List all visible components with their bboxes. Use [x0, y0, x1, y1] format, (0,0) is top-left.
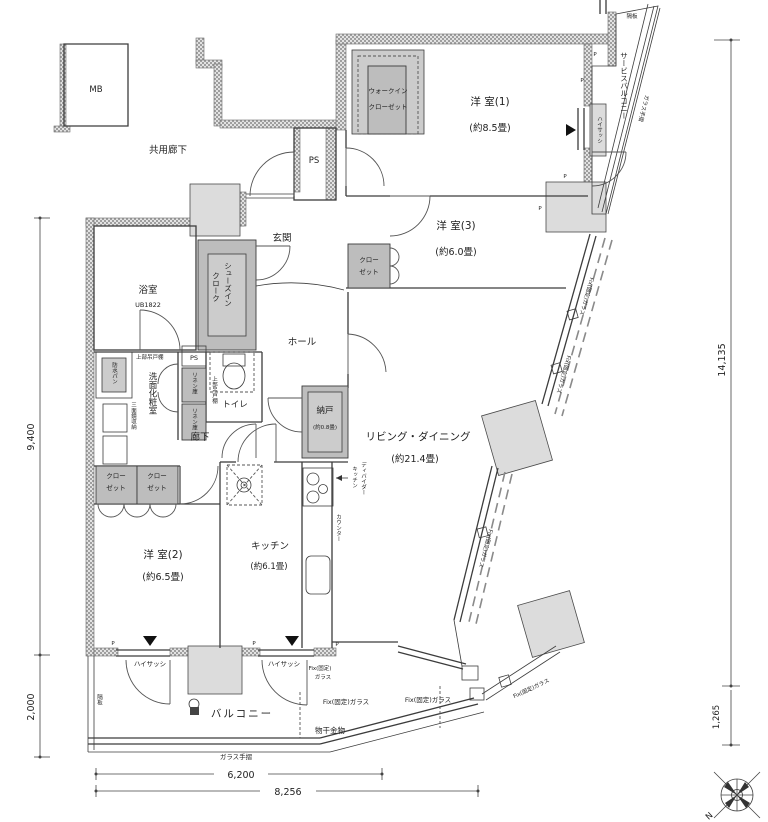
- window-room1-east: [566, 108, 584, 150]
- mirror-cabinet-label: 三面鏡収納: [130, 402, 137, 431]
- entrance-label: 玄関: [272, 232, 291, 244]
- compass-north-label: N: [704, 811, 715, 822]
- room3-size-label: (約6.0畳): [435, 246, 477, 258]
- service-balcony-label: サービスバルコニー: [619, 52, 628, 120]
- window-marker-room2: [143, 636, 157, 646]
- balcony-structure: [88, 656, 484, 752]
- room3-label: 洋 室(3): [436, 219, 475, 232]
- common-corridor-label: 共用廊下: [149, 144, 187, 156]
- toilet-label: トイレ: [222, 400, 248, 410]
- counter-label: カウンター: [335, 514, 342, 542]
- partition-left-label: 隔板: [96, 693, 103, 707]
- meter-box-label: MB: [89, 85, 102, 95]
- wic-label-1: ウォークイン: [369, 87, 408, 95]
- upper-cabinet-label-2: 上部吊戸棚: [211, 375, 218, 405]
- fix-glass-label-3a: Fix(固定): [309, 664, 332, 672]
- storage-room-label: 納戸: [316, 405, 333, 416]
- high-sash-label-room1: ハイサッシ: [596, 116, 603, 144]
- bathroom-model-label: UB1822: [135, 301, 161, 309]
- living-label: リビング・ダイニング: [366, 430, 471, 443]
- compass-icon: [714, 772, 760, 818]
- balcony-slab: [188, 646, 242, 694]
- closet-b-label-2: ゼット: [147, 483, 167, 492]
- laundry-hook-label: 物干金物: [315, 725, 345, 735]
- window-marker-room1: [566, 124, 576, 136]
- kitchen-label: キッチン: [251, 541, 289, 552]
- corridor-label: 廊下: [190, 431, 209, 443]
- pillar-mark: P: [593, 52, 597, 58]
- dim-left-lower: 2,000: [26, 693, 37, 720]
- fix-glass-label-3b: ガラス: [315, 673, 331, 681]
- fix-glass-label-1: Fix(固定)ガラス: [323, 697, 369, 706]
- storage-room-size-label: (約0.8畳): [313, 423, 337, 431]
- wic-label-2: クローゼット: [369, 102, 408, 111]
- mirror-cabinet-box2: [103, 436, 127, 464]
- balcony-label: バルコニー: [211, 708, 273, 720]
- closet-a-label-1: クロー: [106, 472, 126, 480]
- fix-glass-label-2: Fix(固定)ガラス: [405, 695, 451, 704]
- dim-left-upper: 9,400: [26, 423, 37, 450]
- glass-rail-top-label: ガラス手摺: [637, 94, 652, 123]
- sic-label-1: シューズイン: [223, 262, 232, 307]
- room3-closet: [348, 244, 399, 288]
- floor-plan-page: MB 共用廊下 PS 玄関 ホール 廊下 浴室 UB1822 シューズイン クロ…: [0, 0, 768, 822]
- hall-label: ホール: [288, 337, 317, 348]
- room1-size-label: (約8.5畳): [469, 122, 511, 134]
- closet-a-label-2: ゼット: [106, 483, 126, 492]
- kitchen-divider-label-2: ディバイダー: [360, 461, 367, 495]
- room3-closet-label-1: クロー: [359, 256, 379, 264]
- upper-cabinet-label-1: 上部吊戸棚: [136, 353, 164, 361]
- room3-closet-label-2: ゼット: [359, 267, 379, 276]
- glass-rail-bottom-label: ガラス手摺: [220, 752, 253, 761]
- kitchen-divider-label-1: キッチン: [351, 466, 358, 488]
- kitchen-fixtures: [227, 465, 348, 594]
- high-sash-label-kitchen: ハイサッシ: [268, 660, 300, 668]
- sic-label-2: クローク: [212, 272, 221, 303]
- partition-top-label: 隔板: [626, 12, 638, 20]
- linen-label-1: リネン庫: [191, 372, 198, 395]
- closet-b-label-1: クロー: [147, 472, 167, 480]
- pillar-mark: P: [111, 641, 115, 647]
- pillar-top-right: [546, 182, 606, 232]
- storage-room-box: [302, 386, 348, 458]
- waterproof-pan-label: 防水パン: [111, 361, 118, 385]
- fix-glass-label-4: Fix(固定)ガラス: [578, 277, 597, 317]
- pillar-mark: P: [252, 641, 256, 647]
- window-marker-kitchen: [285, 636, 299, 646]
- room2-label: 洋 室(2): [143, 548, 182, 561]
- high-sash-label-room2: ハイサッシ: [134, 660, 166, 668]
- linen-label-2: リネン庫: [191, 408, 198, 431]
- room2-size-label: (約6.5畳): [142, 571, 184, 583]
- floor-plan-drawing: MB 共用廊下 PS 玄関 ホール 廊下 浴室 UB1822 シューズイン クロ…: [0, 0, 768, 822]
- pillar-mark: P: [335, 642, 339, 648]
- living-size-label: (約21.4畳): [391, 453, 439, 465]
- pipe-space-label: PS: [309, 156, 320, 166]
- pillar-mark: P: [538, 206, 542, 212]
- dim-right-lower: 1,265: [712, 705, 722, 729]
- dim-bottom-outer: 8,256: [274, 787, 301, 798]
- bathroom-label: 浴室: [138, 284, 157, 296]
- kitchen-size-label: (約6.1畳): [250, 561, 287, 572]
- washroom-label: 洗面化粧室: [147, 371, 157, 414]
- dim-bottom-inner: 6,200: [227, 770, 254, 781]
- dimension-lines: [34, 39, 740, 798]
- mirror-cabinet-box1: [103, 404, 127, 432]
- kitchen-sink: [306, 556, 330, 594]
- hatch-lock-body: [190, 707, 199, 715]
- entrance-porch-slab: [190, 184, 240, 236]
- exterior-walls: [54, 12, 616, 656]
- pillar-bottom-right: [518, 591, 585, 658]
- pillar-mark: P: [563, 174, 567, 180]
- dim-right-main: 14,135: [717, 343, 728, 376]
- ps-small-label: PS: [190, 354, 198, 362]
- fix-glass-label-6: Fix(固定)ガラス: [477, 529, 495, 569]
- pillar-middle-right: [482, 400, 553, 475]
- room1-label: 洋 室(1): [470, 95, 509, 108]
